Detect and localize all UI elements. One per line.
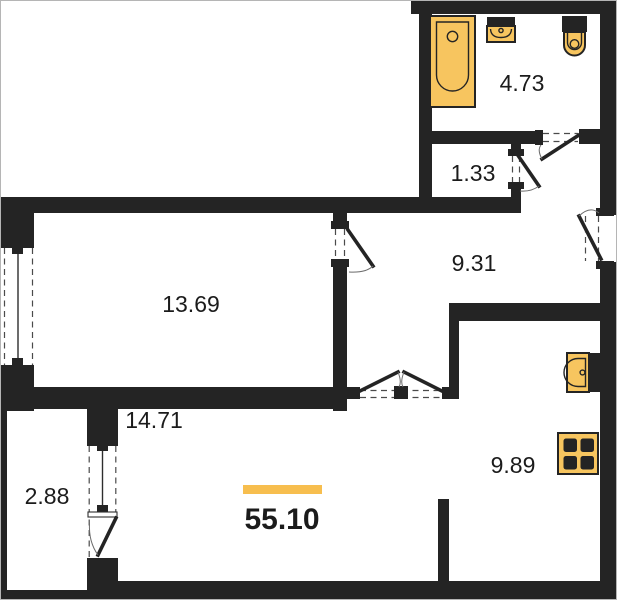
bedroom-window — [5, 246, 33, 366]
kitchen-sink-icon — [564, 353, 600, 392]
toilet-icon — [562, 16, 587, 56]
bathroom-sink-icon — [487, 17, 515, 42]
entrance-door — [579, 208, 614, 269]
bathtub-icon — [430, 16, 475, 107]
bedroom-door — [331, 221, 373, 272]
room-area-label-living-room: 14.71 — [125, 407, 183, 433]
storage-door — [508, 149, 539, 191]
balcony-window-door — [88, 443, 117, 558]
room-area-label-storage: 1.33 — [451, 160, 496, 186]
total-area-accent-bar — [243, 485, 322, 494]
room-area-label-kitchen: 9.89 — [491, 452, 536, 478]
room-area-label-bedroom: 13.69 — [162, 291, 220, 317]
floor-plan: 4.73 1.33 9.31 13.69 14.71 2.88 9.89 55.… — [0, 0, 617, 600]
room-area-label-bathroom: 4.73 — [500, 70, 545, 96]
stove-icon — [558, 433, 598, 474]
room-area-label-hallway: 9.31 — [452, 250, 497, 276]
room-area-label-balcony: 2.88 — [25, 483, 70, 509]
living-room-double-door — [360, 372, 442, 399]
bathroom-door — [535, 130, 579, 159]
total-area-label: 55.10 — [244, 503, 319, 536]
total-area: 55.10 — [243, 485, 322, 536]
